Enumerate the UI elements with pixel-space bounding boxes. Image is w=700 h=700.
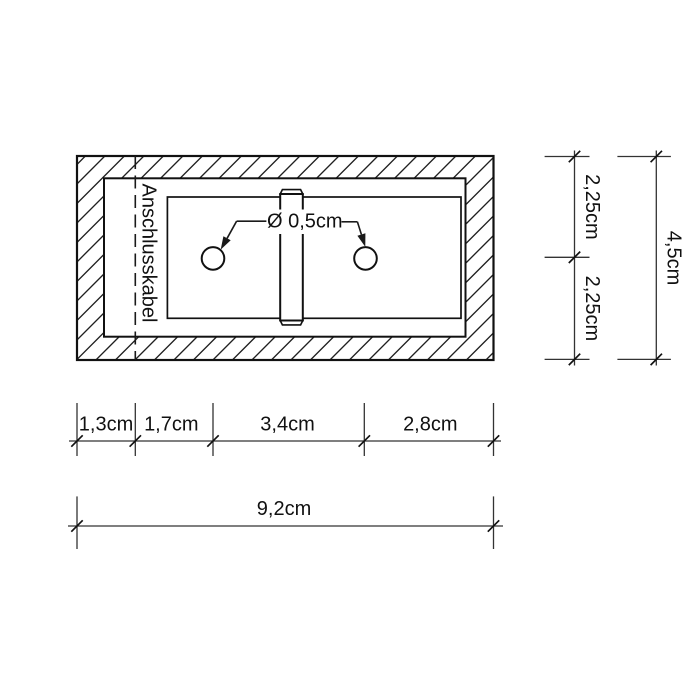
svg-text:1,3cm: 1,3cm xyxy=(79,414,133,436)
svg-text:9,2cm: 9,2cm xyxy=(257,498,311,520)
svg-text:Ø 0,5cm: Ø 0,5cm xyxy=(267,211,343,233)
svg-text:2,25cm: 2,25cm xyxy=(581,276,603,342)
svg-text:4,5cm: 4,5cm xyxy=(663,231,685,285)
svg-text:3,4cm: 3,4cm xyxy=(260,414,314,436)
svg-text:2,8cm: 2,8cm xyxy=(403,414,457,436)
svg-text:2,25cm: 2,25cm xyxy=(581,174,603,240)
svg-text:1,7cm: 1,7cm xyxy=(144,414,198,436)
svg-text:Anschlusskabel: Anschlusskabel xyxy=(138,184,160,323)
